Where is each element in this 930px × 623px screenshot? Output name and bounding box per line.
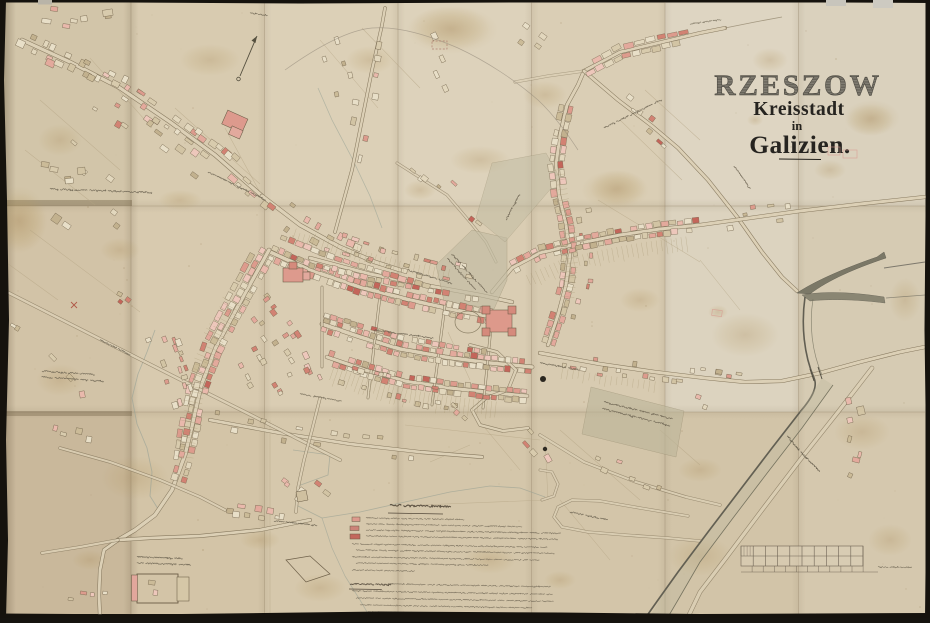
svg-text:Galizien.: Galizien. bbox=[749, 130, 851, 159]
svg-text:RZESZOW: RZESZOW bbox=[714, 70, 881, 102]
svg-text:Kreisstadt: Kreisstadt bbox=[753, 99, 844, 120]
